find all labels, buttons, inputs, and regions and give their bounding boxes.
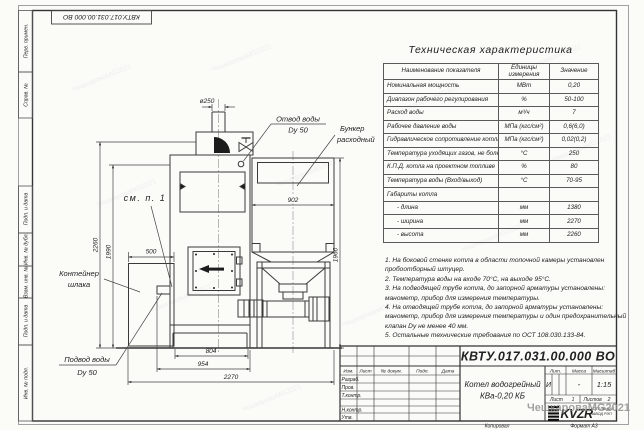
dim-text: 2270 bbox=[223, 374, 239, 381]
spec-cell bbox=[550, 188, 599, 202]
copied-label: Копировал bbox=[485, 424, 510, 430]
col-header: Подп. bbox=[416, 369, 429, 375]
spec-cell: Расход воды bbox=[384, 107, 499, 121]
spec-cell: 50-100 bbox=[550, 93, 599, 107]
product-name-line2: КВа-0,20 КБ bbox=[480, 392, 525, 401]
dim-text: 2260 bbox=[93, 237, 100, 253]
drawing-sheet: Перв. примен. Справ. № Подп. и дата Инв.… bbox=[0, 0, 644, 430]
spec-cell: 7 bbox=[550, 107, 599, 121]
dim-text: 954 bbox=[198, 361, 209, 368]
spec-cell: МВт bbox=[499, 80, 550, 94]
dim-text: ø250 bbox=[200, 98, 215, 105]
spec-cell: 0,20 bbox=[550, 80, 599, 94]
spec-cell: Гидравлическое сопротивление котла bbox=[384, 134, 499, 148]
left-attribute-labels: Перв. примен. Справ. № Подп. и дата Инв.… bbox=[24, 24, 30, 399]
dim-text: 1960 bbox=[333, 247, 340, 262]
spec-table-title: Техническая характеристика bbox=[383, 44, 598, 56]
table-row: Температура уходящих газов, не более°С25… bbox=[384, 147, 599, 161]
note-line: 4. На отводящей трубе котла, до запорной… bbox=[385, 303, 627, 312]
designation: КВТУ.017.031.00.000 ВО bbox=[461, 350, 615, 364]
label-text: Бункер bbox=[340, 124, 364, 133]
mass-header: Масса bbox=[572, 369, 587, 375]
spec-cell: - высота bbox=[384, 229, 499, 243]
strip-label: Взам. инв. № bbox=[24, 266, 30, 298]
spec-cell: 2260 bbox=[550, 229, 599, 243]
spec-cell: Номинальная мощность bbox=[384, 80, 499, 94]
note-line: 2. Температура воды на входе 70°С, на вы… bbox=[385, 275, 627, 284]
strip-label: Инв. № дубл. bbox=[24, 233, 30, 265]
sheets-label: Листов bbox=[583, 397, 603, 403]
mass-value: - bbox=[578, 380, 581, 389]
spec-cell bbox=[499, 188, 550, 202]
sheets-no: 2 bbox=[607, 397, 611, 403]
table-row: Гидравлическое сопротивление котлаМПа (к… bbox=[384, 134, 599, 148]
spec-table: Наименование показателя Единицы измерени… bbox=[383, 63, 599, 243]
table-row: Номинальная мощностьМВт0,20 bbox=[384, 80, 599, 94]
spec-cell: °С bbox=[499, 147, 550, 161]
dim-container: 500 bbox=[129, 249, 175, 263]
spec-cell: К.П.Д. котла на проектном топливе bbox=[384, 161, 499, 175]
lit-mass-scale: Лит. Масса Масштаб bbox=[549, 369, 616, 375]
spec-cell: 0,6(6,0) bbox=[550, 120, 599, 134]
spec-cell: 0,02(0,2) bbox=[550, 134, 599, 148]
table-row: Температура воды (Вход/выход)°С70-95 bbox=[384, 174, 599, 188]
logo-text: KVZR bbox=[561, 407, 594, 421]
spec-cell: Диапазон рабочего регулирования bbox=[384, 93, 499, 107]
boiler-body bbox=[157, 112, 263, 348]
format-label: Формат А3 bbox=[570, 424, 598, 430]
col-header: № докум. bbox=[381, 369, 402, 375]
row-label: Н.контр. bbox=[342, 408, 363, 414]
note-line: 1. На боковой стенке котла в области топ… bbox=[385, 256, 627, 265]
strip-label: Перв. примен. bbox=[24, 24, 30, 58]
org-line1: КОТЕЛЬНЫЙ bbox=[591, 407, 615, 411]
dim-text: 500 bbox=[146, 249, 157, 256]
spec-cell: м³/ч bbox=[499, 107, 550, 121]
org-line2: ЗАВОД РЭП bbox=[591, 412, 612, 416]
table-row: Диапазон рабочего регулирования%50-100 bbox=[384, 93, 599, 107]
note-line: пробоотборный штуцер. bbox=[385, 265, 627, 274]
label-text: см. п. 1 bbox=[124, 193, 167, 203]
dim-text: 804 bbox=[206, 348, 217, 355]
spec-cell: мм bbox=[499, 215, 550, 229]
kvzr-logo: KVZR КОТЕЛЬНЫЙ ЗАВОД РЭП bbox=[548, 406, 614, 421]
spec-cell: % bbox=[499, 161, 550, 175]
strip-label: Справ. № bbox=[24, 83, 30, 107]
dim-text: 902 bbox=[288, 197, 299, 204]
note-line: клапан Dу не менее 40 мм. bbox=[385, 322, 627, 331]
table-row: - высотамм2260 bbox=[384, 229, 599, 243]
table-row: Расход водым³/ч7 bbox=[384, 107, 599, 121]
note-line: манометр, прибор для измерения температу… bbox=[385, 312, 627, 321]
strip-label: Инв. № подл. bbox=[24, 367, 30, 399]
sheet-label: Лист bbox=[549, 397, 563, 403]
boiler-drawing: ø250 2260 1990 bbox=[59, 98, 376, 385]
spec-cell: Габариты котла bbox=[384, 188, 499, 202]
note-line: 3. На подводящей трубе котла, до запорно… bbox=[385, 284, 627, 293]
dim-plinth-width: 804 bbox=[175, 348, 248, 359]
label-text: Подвод воды bbox=[64, 355, 110, 364]
table-row: Габариты котла bbox=[384, 188, 599, 202]
change-table-headers: Изм. Лист № докум. Подп. Дата bbox=[343, 369, 454, 375]
col-header: Лист bbox=[358, 369, 371, 375]
row-label: Т.контр. bbox=[342, 393, 362, 399]
spec-cell: % bbox=[499, 93, 550, 107]
spec-cell: 250 bbox=[550, 147, 599, 161]
sheet-no: 1 bbox=[572, 397, 575, 403]
label-text: Dy 50 bbox=[77, 368, 97, 377]
col-header: Дата bbox=[441, 369, 455, 375]
spec-cell: 1380 bbox=[550, 201, 599, 215]
top-designation-stamp: КВТУ.017.031.00.000 ВО bbox=[52, 11, 152, 25]
lit-header: Лит. bbox=[549, 369, 561, 375]
label-text: Отвод воды bbox=[276, 115, 320, 124]
table-row: К.П.Д. котла на проектном топливе%80 bbox=[384, 161, 599, 175]
spec-cell: Температура уходящих газов, не более bbox=[384, 147, 499, 161]
spec-cell: МПа (кгс/см²) bbox=[499, 134, 550, 148]
title-block: КВТУ.017.031.00.000 ВО Изм. Лист № докум… bbox=[340, 346, 617, 421]
row-label: Разраб. bbox=[342, 377, 360, 383]
col-header: Изм. bbox=[343, 369, 353, 375]
label-text: Контейнер bbox=[59, 269, 99, 278]
spec-cell: 70-95 bbox=[550, 174, 599, 188]
strip-label: Подп. и дата bbox=[24, 305, 30, 338]
spec-cell: - длина bbox=[384, 201, 499, 215]
spec-cell: мм bbox=[499, 201, 550, 215]
scale-value: 1:15 bbox=[597, 380, 612, 389]
dim-bunker-width: 902 bbox=[252, 196, 334, 206]
dim-chimney: ø250 bbox=[200, 98, 235, 111]
dim-body-width: 954 bbox=[157, 296, 250, 372]
spec-cell: Температура воды (Вход/выход) bbox=[384, 174, 499, 188]
spec-cell: 80 bbox=[550, 161, 599, 175]
spec-header-row: Наименование показателя Единицы измерени… bbox=[384, 64, 599, 80]
spec-cell: 2270 bbox=[550, 215, 599, 229]
label-text: расходный bbox=[336, 135, 376, 144]
row-label: Утв. bbox=[342, 415, 353, 421]
label-text: шлака bbox=[68, 280, 90, 289]
centerlines bbox=[219, 99, 294, 353]
label-see-note: см. п. 1 bbox=[124, 193, 172, 287]
label-water-inlet: Подвод воды Dy 50 bbox=[59, 293, 162, 377]
note-line: 5. Остальные технические требования по О… bbox=[385, 331, 627, 340]
spec-cell: - ширина bbox=[384, 215, 499, 229]
slag-container bbox=[129, 264, 175, 347]
spec-cell: МПа (кгс/см²) bbox=[499, 120, 550, 134]
spec-header-cell: Наименование показателя bbox=[384, 64, 499, 80]
label-water-outlet: Отвод воды Dy 50 bbox=[244, 115, 327, 162]
lit-value: И bbox=[546, 382, 552, 389]
spec-cell: °С bbox=[499, 174, 550, 188]
strip-label: Подп. и дата bbox=[24, 193, 30, 226]
scale-header: Масштаб bbox=[593, 369, 616, 375]
spec-cell: Рабочее давление воды bbox=[384, 120, 499, 134]
table-row: - длинамм1380 bbox=[384, 201, 599, 215]
spec-header-cell: Значение bbox=[550, 64, 599, 80]
dim-text: 1990 bbox=[106, 244, 113, 259]
spec-header-cell: Единицы измерения bbox=[499, 64, 550, 80]
label-slag-container: Контейнер шлака bbox=[59, 269, 140, 292]
dim-overall-width: 2270 bbox=[128, 349, 334, 385]
product-name-line1: Котел водогрейный bbox=[464, 380, 541, 389]
top-designation-text: КВТУ.017.031.00.000 ВО bbox=[62, 13, 139, 20]
label-bunker: Бункер расходный bbox=[297, 124, 376, 186]
table-row: Рабочее давление водыМПа (кгс/см²)0,6(6,… bbox=[384, 120, 599, 134]
spec-cell: мм bbox=[499, 229, 550, 243]
row-label: Пров. bbox=[342, 385, 355, 391]
technical-notes: 1. На боковой стенке котла в области топ… bbox=[385, 256, 627, 341]
label-text: Dy 50 bbox=[288, 126, 308, 135]
note-line: манометр, прибор для измерения температу… bbox=[385, 294, 627, 303]
table-row: - ширинамм2270 bbox=[384, 215, 599, 229]
